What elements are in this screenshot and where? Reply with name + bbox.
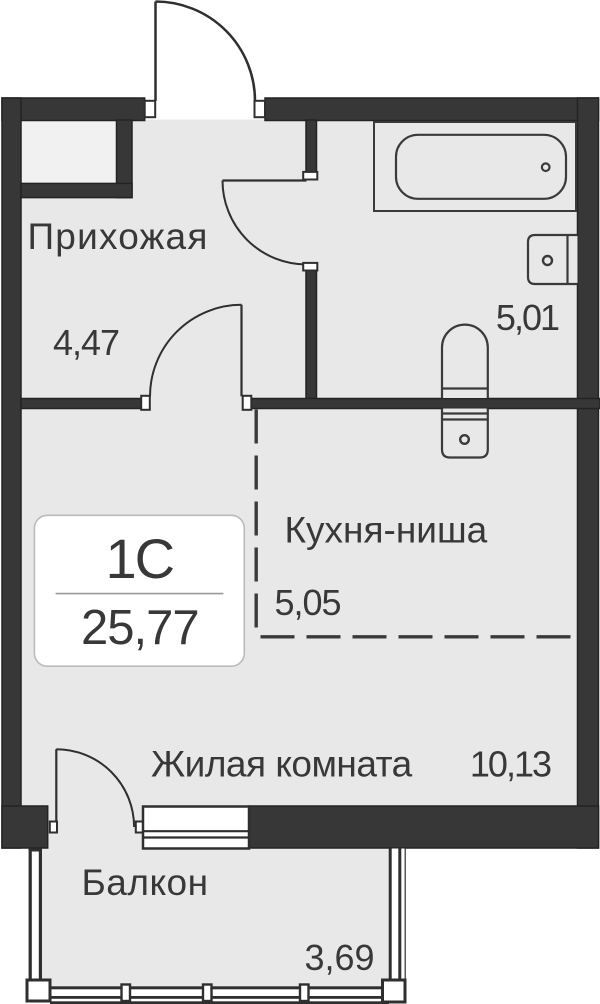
svg-text:Прихожая: Прихожая [28,216,209,257]
svg-text:Жилая комната: Жилая комната [151,744,413,785]
svg-text:1С: 1С [106,527,174,590]
svg-text:Балкон: Балкон [82,862,209,903]
svg-text:Кухня-ниша: Кухня-ниша [285,510,488,551]
svg-text:5,01: 5,01 [496,297,559,338]
svg-text:5,05: 5,05 [275,582,341,623]
svg-text:10,13: 10,13 [470,744,551,785]
svg-text:3,69: 3,69 [305,937,375,978]
svg-text:25,77: 25,77 [81,601,199,655]
svg-text:4,47: 4,47 [53,322,119,363]
